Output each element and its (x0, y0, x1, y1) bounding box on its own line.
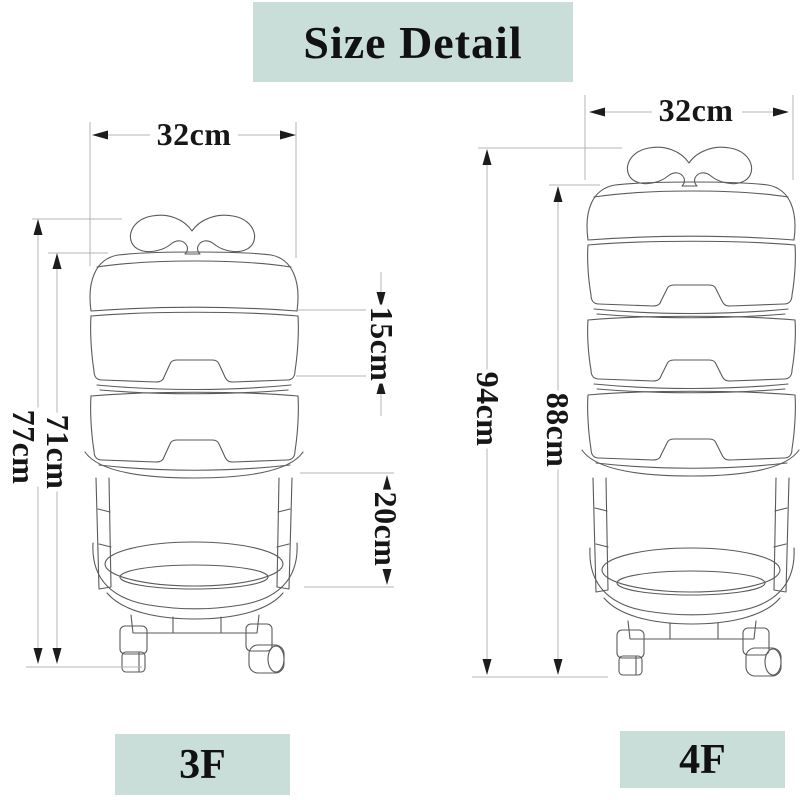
dim-tier-height-3f-label: 15cm (366, 305, 398, 384)
dim-total-height-4f-label: 94cm (472, 370, 504, 449)
dim-basket-height-3f-label: 20cm (370, 490, 402, 569)
dim-body-height-4f-label: 88cm (542, 391, 574, 470)
floor-label-4f: 4F (620, 731, 785, 788)
cart-3f-wheels (120, 624, 284, 673)
dim-total-height-3f-label: 77cm (8, 408, 40, 487)
page-title: Size Detail (303, 16, 522, 69)
dim-width-4f-label: 32cm (659, 94, 734, 126)
dim-body-height-3f-label: 71cm (42, 413, 74, 492)
dim-width-3f-label: 32cm (157, 118, 232, 150)
size-detail-diagram: Size Detail 32cm 77cm 71cm 15cm 20cm 32c… (0, 0, 800, 800)
dimension-arrows-3f (34, 131, 392, 665)
title-panel: Size Detail (253, 2, 573, 82)
dimension-lines-4f (472, 95, 793, 677)
floor-label-4f-text: 4F (679, 736, 726, 784)
cart-4f-wheels (617, 628, 781, 676)
floor-label-3f: 3F (115, 734, 290, 795)
cart-3f-handle (130, 215, 254, 254)
cart-4f-drawing (582, 147, 799, 676)
cart-4f-handle (627, 147, 751, 186)
cart-3f-drawing (85, 215, 303, 673)
floor-label-3f-text: 3F (179, 741, 226, 789)
